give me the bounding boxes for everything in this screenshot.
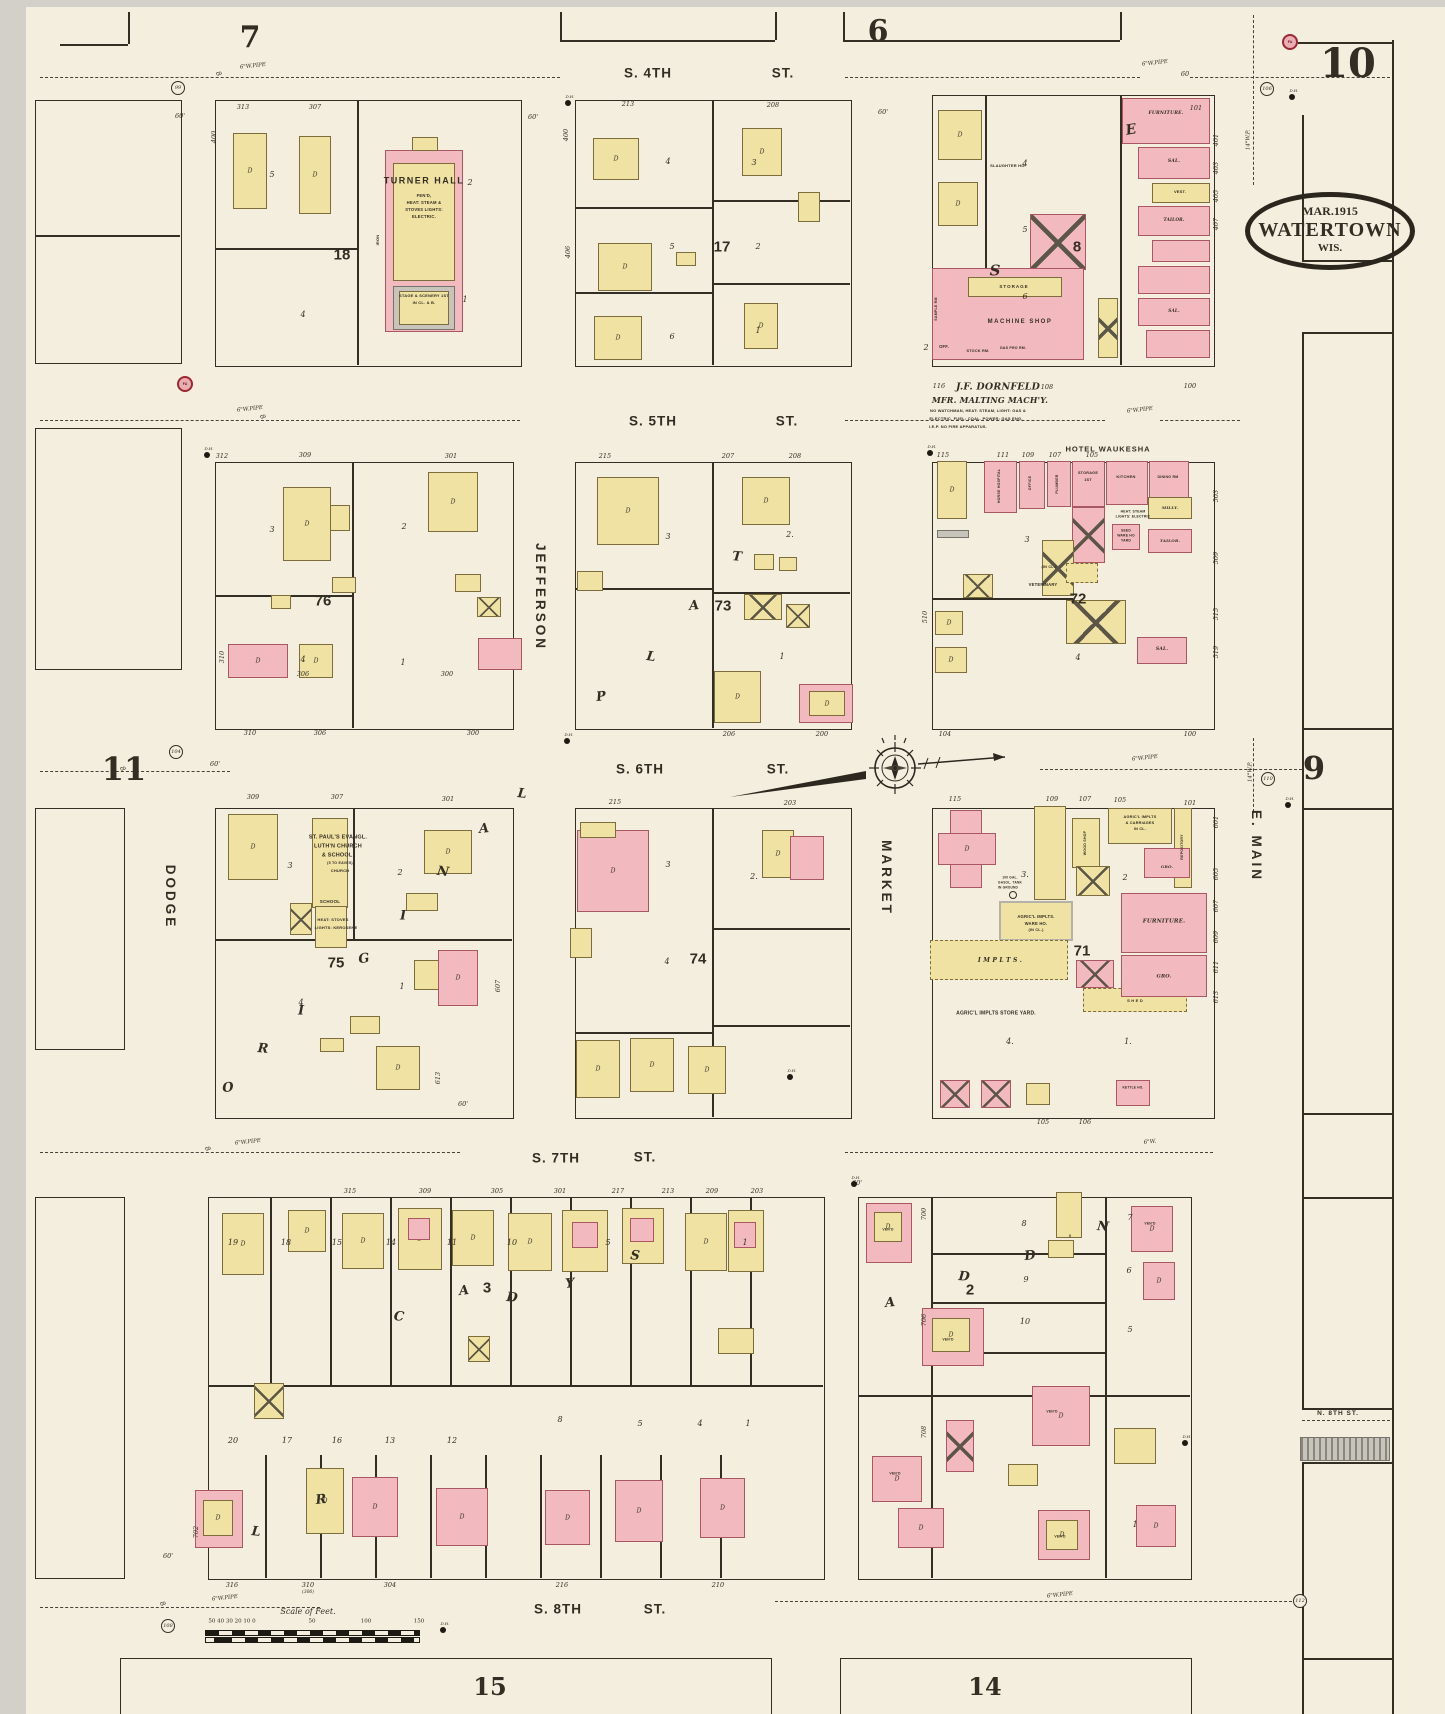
house-number: 307 bbox=[331, 794, 343, 801]
lot-number: 3 bbox=[665, 861, 670, 869]
street-label: S. 7TH bbox=[532, 1151, 580, 1165]
house-number: 109 bbox=[1022, 452, 1034, 459]
building: D bbox=[283, 487, 331, 561]
building-label: D bbox=[216, 1515, 221, 1522]
lot-number: 2 bbox=[923, 344, 928, 352]
annotation: OFF. bbox=[939, 345, 949, 349]
pipe-label: 6"W.PIPE bbox=[237, 406, 263, 414]
building: D bbox=[593, 138, 639, 180]
building-label: D bbox=[596, 1066, 601, 1073]
house-number: 60' bbox=[210, 761, 220, 768]
building: D bbox=[938, 833, 996, 865]
lot-number: 4 bbox=[1075, 654, 1080, 662]
lot-number: 1 bbox=[1132, 1521, 1137, 1529]
building-label: D bbox=[965, 846, 970, 853]
lot-number: 5 bbox=[269, 171, 274, 179]
building bbox=[1114, 1428, 1156, 1464]
annotation: STAGE & SCENERY 1ST bbox=[399, 294, 449, 298]
lot-number: 4 bbox=[298, 999, 303, 1007]
lot-number: 6 bbox=[1022, 293, 1027, 301]
house-number: 209 bbox=[706, 1188, 718, 1195]
scale-bar bbox=[205, 1630, 420, 1643]
map-line bbox=[215, 939, 512, 941]
annotation: STORAGE bbox=[999, 285, 1028, 290]
water-pipe-line bbox=[40, 1152, 460, 1153]
map-line bbox=[712, 100, 714, 365]
pipe-junction-circle: 112 bbox=[1293, 1594, 1307, 1608]
street-label: DODGE bbox=[163, 865, 177, 930]
map-line bbox=[600, 1455, 602, 1578]
pipe-label: 6"W.PIPE bbox=[1047, 1592, 1073, 1600]
house-number: 101 bbox=[1190, 105, 1202, 112]
plat-letter: A bbox=[688, 599, 699, 613]
annotation: 1ST bbox=[1084, 479, 1092, 483]
building-label: D bbox=[950, 487, 955, 494]
building-label: D bbox=[614, 156, 619, 163]
house-number: 60' bbox=[458, 1101, 468, 1108]
house-number: 702 bbox=[193, 1526, 200, 1538]
plat-letter: C bbox=[393, 1310, 404, 1324]
building bbox=[630, 1218, 654, 1242]
map-line bbox=[128, 12, 130, 44]
annotation: STORAGE bbox=[1078, 472, 1098, 476]
building: D bbox=[452, 1210, 494, 1266]
house-number: 216 bbox=[556, 1582, 568, 1589]
annotation: WOOD SHOP bbox=[1084, 831, 1088, 856]
map-line bbox=[1302, 1113, 1392, 1115]
annotation: & CARRIAGES bbox=[1126, 822, 1155, 826]
annotation: S H E D bbox=[1127, 999, 1143, 1003]
building bbox=[754, 554, 774, 570]
pipe-junction-circle: 104 bbox=[169, 745, 183, 759]
annotation: 100 GAL. bbox=[1002, 876, 1017, 879]
house-number: 310 bbox=[244, 730, 256, 737]
map-line bbox=[1302, 1197, 1392, 1199]
house-number: 706 bbox=[921, 1314, 928, 1326]
page-number: 14 bbox=[968, 1675, 1001, 1699]
building bbox=[1138, 266, 1210, 294]
annotation: SAMPLE RM bbox=[935, 297, 939, 320]
map-line bbox=[357, 100, 359, 365]
annotation: GRO. bbox=[1161, 865, 1173, 869]
map-line bbox=[330, 1197, 332, 1385]
lot-number: 1 bbox=[400, 659, 405, 667]
building: D bbox=[228, 814, 278, 880]
annotation: ELECTRIC. FUEL: COAL. POWER: GAS ENG. bbox=[929, 417, 1022, 421]
building bbox=[786, 604, 810, 628]
block-number: 3 bbox=[483, 1281, 491, 1296]
map-line bbox=[1302, 332, 1304, 1408]
map-line bbox=[270, 1197, 272, 1385]
building: D bbox=[872, 1456, 922, 1502]
scale-tick: 100 bbox=[361, 1619, 372, 1625]
annotation: SAL. bbox=[1168, 309, 1179, 313]
building: D bbox=[228, 644, 288, 678]
annotation: MFR. MALTING MACH'Y. bbox=[932, 396, 1048, 404]
map-line bbox=[353, 808, 355, 940]
building bbox=[981, 1080, 1011, 1108]
building-label: D bbox=[305, 1228, 310, 1235]
house-number: 613 bbox=[1213, 991, 1220, 1003]
hydrant-dot bbox=[440, 1627, 446, 1633]
hydrant-dot bbox=[1182, 1440, 1188, 1446]
building bbox=[455, 574, 481, 592]
hydrant-label: D.H. bbox=[204, 446, 213, 451]
building bbox=[350, 1016, 380, 1034]
lot-number: 1 bbox=[462, 296, 467, 304]
house-number: 100 bbox=[1184, 383, 1196, 390]
building bbox=[1146, 330, 1210, 358]
plat-letter: N bbox=[436, 865, 449, 879]
building: D bbox=[288, 1210, 326, 1252]
building bbox=[478, 638, 522, 670]
block-outline bbox=[840, 1658, 1192, 1714]
building bbox=[254, 1383, 284, 1419]
annotation: WARE HO. bbox=[1025, 922, 1048, 926]
plat-letter: R bbox=[315, 1493, 327, 1507]
block-number: 17 bbox=[714, 240, 731, 255]
house-number: 607 bbox=[1213, 900, 1220, 912]
map-line bbox=[560, 12, 562, 40]
plat-letter: P bbox=[595, 690, 606, 704]
annotation: MILLY. bbox=[1162, 506, 1179, 510]
house-number: 306 bbox=[297, 671, 309, 678]
annotation: FEN'D, bbox=[417, 194, 432, 198]
building: D bbox=[630, 1038, 674, 1092]
map-line bbox=[60, 44, 128, 46]
building-label: D bbox=[396, 1065, 401, 1072]
plat-letter: A bbox=[884, 1296, 895, 1310]
house-number: 304 bbox=[384, 1582, 396, 1589]
annotation: NO WATCHMAN, HEAT: STEAM, LIGHT: GAS & bbox=[930, 409, 1026, 413]
pipe-junction-circle: 110 bbox=[1261, 772, 1275, 786]
annotation: STOCK RM. bbox=[966, 350, 989, 354]
annotation: IN CL. bbox=[1134, 828, 1146, 832]
building: D bbox=[898, 1508, 944, 1548]
house-number: (306) bbox=[302, 1591, 314, 1596]
lot-number: 4 bbox=[300, 311, 305, 319]
lot-number: 5 bbox=[637, 1420, 642, 1428]
building: D bbox=[233, 133, 267, 209]
hydrant-dot bbox=[1285, 802, 1291, 808]
hydrant-dot bbox=[851, 1181, 857, 1187]
building bbox=[570, 928, 592, 958]
house-number: 107 bbox=[1049, 452, 1061, 459]
lot-number: 3 bbox=[269, 526, 274, 534]
lot-number: 6 bbox=[669, 333, 674, 341]
building-label: D bbox=[305, 521, 310, 528]
house-number: 109 bbox=[1046, 796, 1058, 803]
building-label: D bbox=[760, 149, 765, 156]
annotation: ST. PAUL'S EVANGL. bbox=[309, 835, 367, 841]
annotation: SAL. bbox=[1168, 160, 1180, 165]
building-label: D bbox=[241, 1241, 246, 1248]
water-pipe-line bbox=[1040, 769, 1302, 770]
water-pipe-line bbox=[845, 1152, 1213, 1153]
house-number: 106 bbox=[1079, 1119, 1091, 1126]
annotation: I.E.P. NO FIRE APPARATUS. bbox=[929, 425, 987, 429]
annotation: PLUMBER bbox=[1056, 474, 1060, 493]
building-label: D bbox=[895, 1476, 900, 1483]
water-pipe-line bbox=[40, 420, 520, 421]
water-pipe-line bbox=[40, 77, 560, 78]
annotation: GRO. bbox=[1156, 975, 1171, 980]
building: D bbox=[742, 477, 790, 525]
annotation: TAILOR. bbox=[1163, 218, 1184, 222]
house-number: 519 bbox=[1213, 646, 1220, 658]
building bbox=[414, 960, 440, 990]
map-line bbox=[430, 1455, 432, 1578]
house-number: 315 bbox=[344, 1188, 356, 1195]
house-number: 407 bbox=[1213, 218, 1220, 230]
hydrant-label: D.H. bbox=[1289, 88, 1298, 93]
building-label: D bbox=[1157, 1278, 1162, 1285]
hydrant-dot bbox=[927, 450, 933, 456]
building: D bbox=[700, 1478, 745, 1538]
building bbox=[676, 252, 696, 266]
lot-number: 8 bbox=[557, 1416, 562, 1424]
lot-number: 3 bbox=[287, 862, 292, 870]
scale-tick: 50 40 30 20 10 0 bbox=[208, 1619, 255, 1625]
hydrant-label: D.H. bbox=[787, 1068, 796, 1073]
building bbox=[1116, 1080, 1150, 1106]
annotation: TURNER HALL bbox=[384, 177, 465, 186]
house-number: 108 bbox=[1041, 384, 1053, 391]
pipe-label: 6"W.PIPE bbox=[1132, 755, 1158, 763]
map-line bbox=[1302, 1658, 1392, 1660]
map-line bbox=[843, 12, 845, 40]
annotation: (IN CL.) bbox=[1041, 566, 1056, 570]
house-number: 101 bbox=[1184, 800, 1196, 807]
building: D bbox=[685, 1213, 727, 1271]
map-line bbox=[208, 1385, 823, 1387]
plat-letter: E bbox=[1125, 122, 1138, 138]
building bbox=[1072, 507, 1105, 563]
annotation: GAS PRO RM. bbox=[1000, 347, 1026, 351]
building: D bbox=[598, 243, 652, 291]
building bbox=[332, 577, 356, 593]
block-outline bbox=[120, 1658, 772, 1714]
lot-number: 2 bbox=[467, 179, 472, 187]
building-label: D bbox=[705, 1067, 710, 1074]
house-number: 310 bbox=[302, 1582, 314, 1589]
building-label: D bbox=[251, 844, 256, 851]
lot-number: 4 bbox=[664, 958, 669, 966]
building-label: D bbox=[373, 1504, 378, 1511]
title-state: WIS. bbox=[1250, 242, 1410, 254]
building bbox=[320, 1038, 344, 1052]
building: D bbox=[545, 1490, 590, 1545]
building: D bbox=[428, 472, 478, 532]
water-pipe-line bbox=[1253, 15, 1254, 185]
map-line bbox=[985, 95, 987, 268]
lot-number: 4 bbox=[300, 656, 305, 664]
house-number: 301 bbox=[554, 1188, 566, 1195]
building-label: D bbox=[616, 335, 621, 342]
building-label: D bbox=[456, 975, 461, 982]
house-number: 203 bbox=[784, 800, 796, 807]
building bbox=[744, 594, 782, 620]
hydrant-label: D.H. bbox=[564, 732, 573, 737]
map-line bbox=[390, 1197, 392, 1385]
house-number: 700 bbox=[921, 1208, 928, 1220]
building-label: D bbox=[1150, 1226, 1155, 1233]
lot-number: 5 bbox=[1127, 1326, 1132, 1334]
scale-tick: 50 bbox=[309, 1619, 316, 1625]
map-line bbox=[712, 928, 850, 930]
street-label: S. 6TH bbox=[616, 762, 664, 776]
building: D bbox=[438, 950, 478, 1006]
house-number: 503 bbox=[1213, 490, 1220, 502]
hydrant-dot bbox=[1289, 94, 1295, 100]
lot-number: 2 bbox=[1122, 874, 1127, 882]
building bbox=[1076, 866, 1110, 896]
annotation: FURNITURE. bbox=[1143, 919, 1185, 925]
annotation: HEAT: STEAM bbox=[1121, 510, 1146, 513]
building bbox=[1108, 808, 1172, 844]
annotation: GASOL. TANK bbox=[998, 881, 1022, 884]
water-pipe-line bbox=[775, 1601, 1302, 1602]
building bbox=[412, 137, 438, 151]
annotation: I M P L T S . bbox=[978, 958, 1022, 964]
building bbox=[790, 836, 824, 880]
annotation: ELECTRIC. bbox=[412, 215, 436, 219]
building: D bbox=[935, 647, 967, 673]
pipe-junction-circle: 99 bbox=[171, 81, 185, 95]
annotation: KETTLE HO. bbox=[1123, 1086, 1144, 1089]
building bbox=[1076, 960, 1114, 988]
building-label: D bbox=[471, 1235, 476, 1242]
building bbox=[1072, 461, 1105, 507]
house-number: 301 bbox=[445, 453, 457, 460]
house-number: 60' bbox=[878, 109, 888, 116]
building: D bbox=[376, 1046, 420, 1090]
lot-number: 18 bbox=[281, 1239, 291, 1247]
annotation: VEN'D bbox=[1054, 1535, 1065, 1538]
block-number: 72 bbox=[1070, 592, 1087, 607]
building bbox=[940, 1080, 970, 1108]
pipe-label: 14"W.P. bbox=[1248, 762, 1254, 782]
plat-letter: D bbox=[958, 1270, 970, 1284]
house-number: 509 bbox=[1213, 552, 1220, 564]
annotation: VETERINARY bbox=[1029, 583, 1058, 587]
annotation: AGRIC'L IMPLTS STORE YARD. bbox=[956, 1012, 1036, 1017]
scale-label: Scale of Feet. bbox=[280, 1608, 335, 1616]
block-number: 18 bbox=[334, 248, 351, 263]
building bbox=[1026, 1083, 1050, 1105]
annotation: IN CL. & B. bbox=[413, 301, 436, 305]
scale-tick: 150 bbox=[414, 1619, 425, 1625]
building: D bbox=[935, 611, 963, 635]
house-number: 60 bbox=[1181, 71, 1189, 78]
house-number: 305 bbox=[491, 1188, 503, 1195]
building-label: D bbox=[919, 1525, 924, 1532]
building: D bbox=[577, 830, 649, 912]
house-number: 607 bbox=[495, 980, 502, 992]
building-label: D bbox=[958, 132, 963, 139]
building bbox=[963, 574, 993, 598]
hydrant-label: D.H. bbox=[440, 1621, 449, 1626]
house-number: 210 bbox=[712, 1582, 724, 1589]
lot-number: 4. bbox=[1006, 1038, 1014, 1046]
map-line bbox=[1302, 332, 1392, 334]
plat-letter: ' bbox=[1069, 1236, 1072, 1245]
building bbox=[1056, 1192, 1082, 1238]
house-number: 601 bbox=[1213, 816, 1220, 828]
plat-letter: G bbox=[358, 952, 371, 966]
building bbox=[718, 1328, 754, 1354]
building bbox=[1106, 461, 1148, 505]
plat-letter: S bbox=[990, 264, 1001, 279]
building-label: D bbox=[248, 168, 253, 175]
title-oval: MAR.1915 WATERTOWN WIS. bbox=[1245, 192, 1415, 270]
annotation: SCHOOL bbox=[320, 900, 340, 905]
building-label: D bbox=[720, 1505, 725, 1512]
building-label: D bbox=[949, 657, 954, 664]
house-number: 100 bbox=[1184, 731, 1196, 738]
building-label: D bbox=[256, 658, 261, 665]
house-number: 309 bbox=[299, 452, 311, 459]
block-number: 73 bbox=[715, 599, 732, 614]
plat-letter: O bbox=[222, 1081, 235, 1095]
annotation: SAL. bbox=[1156, 648, 1168, 653]
lot-number: 10 bbox=[1020, 1318, 1030, 1326]
lot-number: 2. bbox=[786, 531, 794, 539]
plat-letter: L bbox=[517, 787, 527, 801]
annotation: VEN'D bbox=[882, 1228, 893, 1231]
building bbox=[580, 822, 616, 838]
map-line bbox=[712, 200, 850, 202]
annotation: DINING RM bbox=[1158, 476, 1179, 480]
map-line bbox=[931, 1253, 1105, 1255]
block-number: 8 bbox=[1073, 240, 1081, 255]
house-number: 403 bbox=[1213, 162, 1220, 174]
house-number: 312 bbox=[216, 453, 228, 460]
map-line bbox=[540, 1455, 542, 1578]
page-number: 9 bbox=[1303, 752, 1325, 784]
pipe-label: 6"W.PIPE bbox=[235, 1139, 261, 1147]
house-number: 306 bbox=[314, 730, 326, 737]
plat-letter: L bbox=[646, 650, 657, 664]
building: D bbox=[742, 128, 782, 176]
house-number: 213 bbox=[622, 101, 634, 108]
street-label: ST. bbox=[767, 762, 790, 776]
map-line bbox=[775, 12, 777, 40]
building bbox=[330, 505, 350, 531]
house-number: 400 bbox=[563, 129, 570, 141]
building bbox=[1152, 240, 1210, 262]
building bbox=[468, 1336, 490, 1362]
house-number: 60' bbox=[175, 113, 185, 120]
map-canvas: DDDDDDDDDDDDDDDDDDDDDDDDDDDDDDDDDDDDDDDD… bbox=[0, 0, 1445, 1714]
page-number: 15 bbox=[473, 1675, 506, 1699]
building bbox=[290, 903, 312, 935]
building bbox=[779, 557, 797, 571]
block-number: 76 bbox=[315, 594, 332, 609]
hydrant-dot bbox=[787, 1074, 793, 1080]
building-label: D bbox=[1059, 1413, 1064, 1420]
house-number: 206 bbox=[723, 731, 735, 738]
lot-number: 5 bbox=[1022, 226, 1027, 234]
pipe-junction-circle: 108 bbox=[161, 1619, 175, 1633]
building bbox=[946, 1420, 974, 1472]
annotation: VEN'D bbox=[1046, 1410, 1057, 1413]
house-number: 605 bbox=[1213, 868, 1220, 880]
plat-letter: I bbox=[400, 910, 406, 923]
annotation: STOVES LIGHTS: bbox=[405, 208, 443, 212]
building bbox=[1300, 1437, 1390, 1461]
lot-number: 2 bbox=[755, 243, 760, 251]
